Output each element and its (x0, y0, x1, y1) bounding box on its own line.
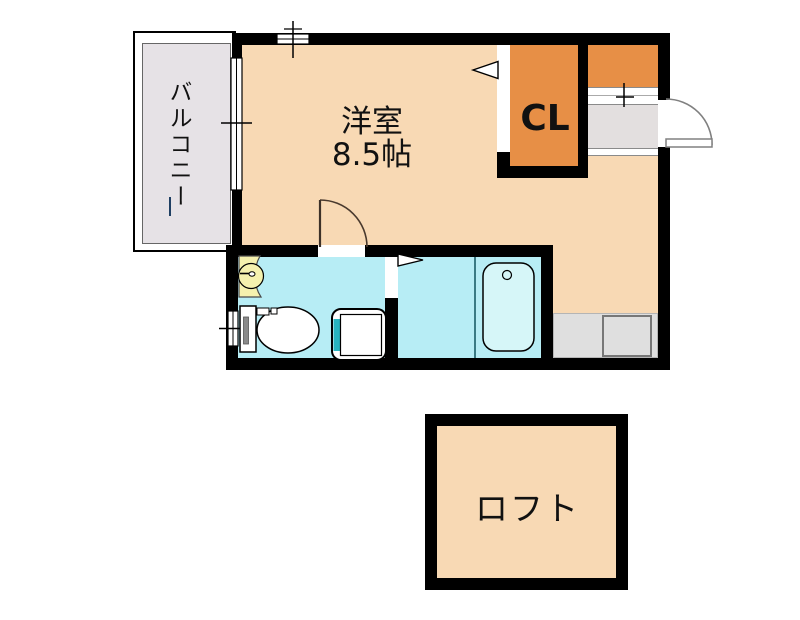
window-room-top-icon (277, 21, 309, 58)
main-room-name: 洋室 (297, 106, 447, 139)
window-room-left-icon (221, 58, 252, 190)
main-room-size: 8.5帖 (297, 139, 447, 172)
balcony-label: バルコニー (161, 80, 195, 210)
toilet-icon (240, 306, 319, 353)
washer-pan-icon (332, 309, 386, 360)
wash-basin-icon (239, 256, 264, 297)
closet-label: CL (506, 98, 584, 139)
fixtures-overlay (0, 0, 800, 620)
closet-door-triangle-icon (473, 62, 498, 79)
main-room-label: 洋室 8.5帖 (297, 106, 447, 172)
floorplan-canvas: バルコニー 洋室 8.5帖 CL ロフト (0, 0, 800, 620)
entrance-door-swing-icon (666, 99, 712, 147)
room-door-swing-icon (320, 200, 367, 247)
bathtub-icon (483, 263, 534, 351)
loft-label: ロフト (437, 482, 618, 530)
bath-door-triangle-icon (398, 254, 423, 266)
entry-step-cross-icon (616, 83, 634, 107)
